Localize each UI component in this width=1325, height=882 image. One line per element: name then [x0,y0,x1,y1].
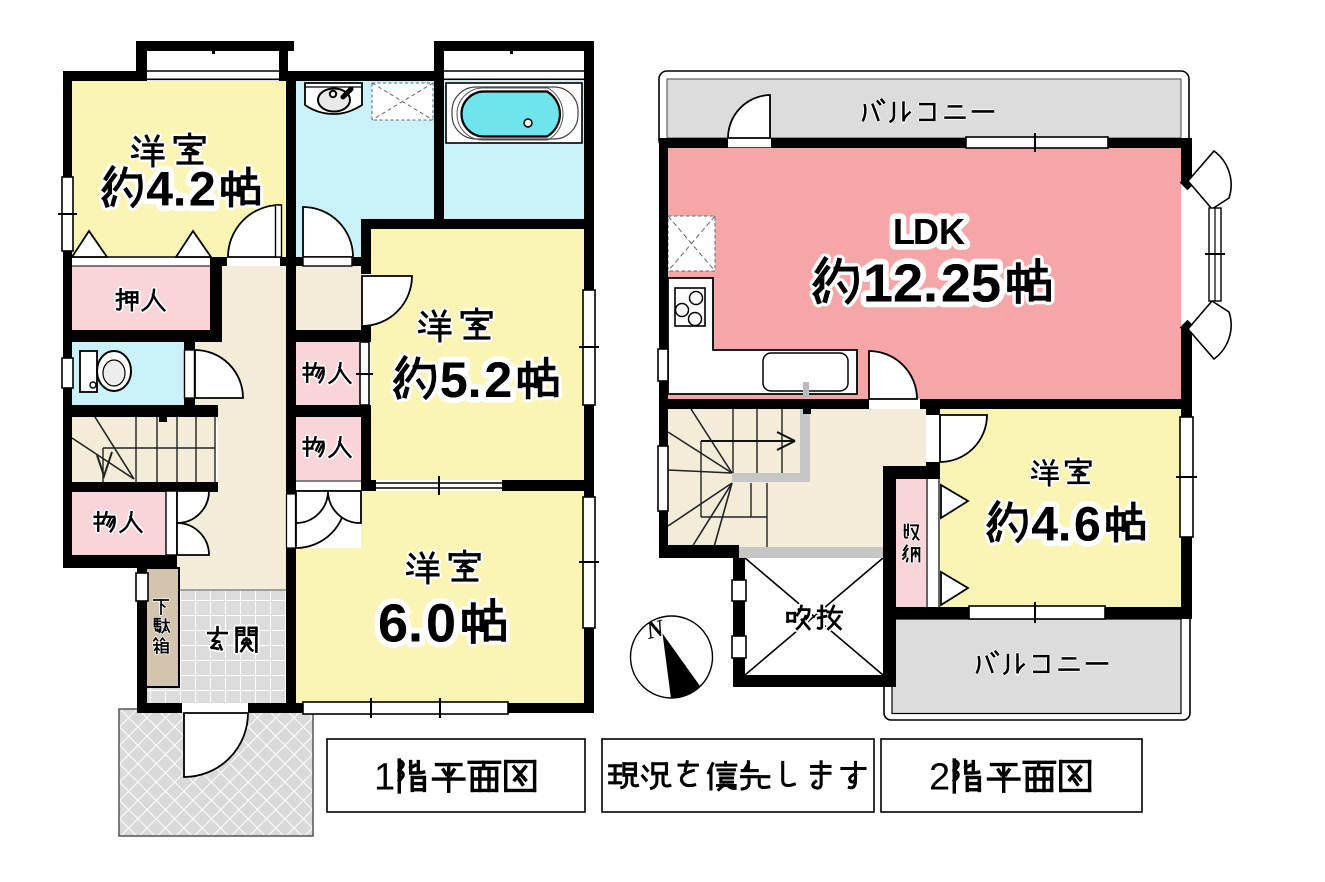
svg-text:L: L [893,211,915,252]
svg-text:2: 2 [484,352,512,408]
svg-text:6: 6 [378,593,408,653]
svg-text:1: 1 [863,253,893,313]
svg-text:1: 1 [374,757,395,799]
svg-text:0: 0 [426,593,456,653]
svg-text:2: 2 [893,253,923,313]
svg-text:.: . [173,163,186,216]
svg-text:.: . [923,253,938,313]
svg-text:5: 5 [971,253,1001,313]
svg-text:2: 2 [189,163,216,216]
svg-text:K: K [939,211,965,252]
svg-text:2: 2 [941,253,971,313]
svg-text:.: . [468,352,482,408]
svg-text:5: 5 [440,352,468,408]
svg-text:.: . [408,593,423,653]
svg-text:4: 4 [146,163,173,216]
svg-text:D: D [913,211,939,252]
svg-text:4: 4 [1031,498,1058,551]
svg-text:2: 2 [929,757,950,799]
svg-text:.: . [1058,498,1071,551]
svg-text:6: 6 [1074,498,1101,551]
